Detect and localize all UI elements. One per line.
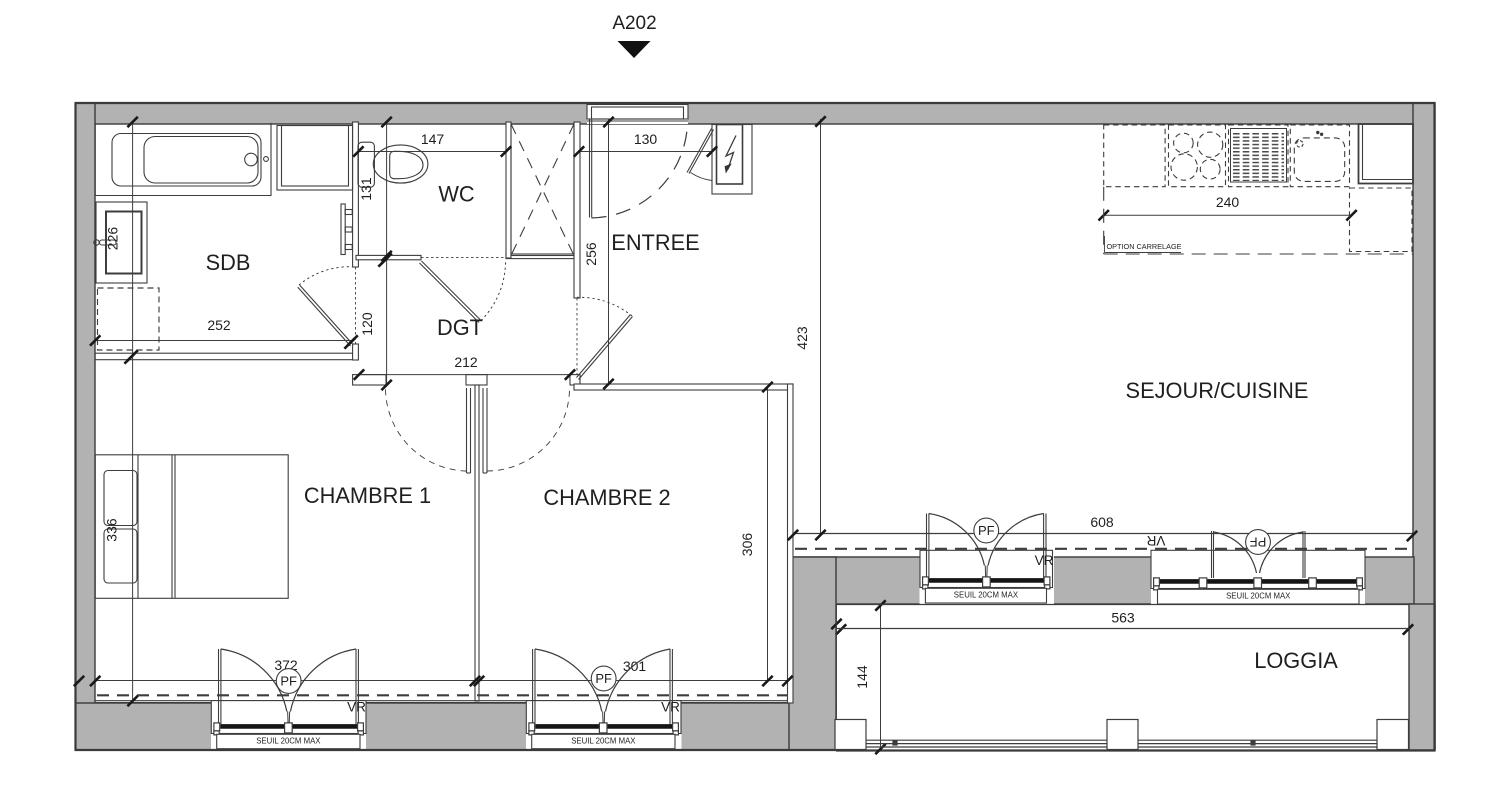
- svg-text:PF: PF: [595, 671, 612, 686]
- svg-text:VR: VR: [347, 700, 366, 715]
- svg-text:608: 608: [1090, 514, 1114, 530]
- svg-text:563: 563: [1111, 610, 1135, 626]
- svg-text:423: 423: [794, 326, 810, 350]
- svg-text:WC: WC: [438, 182, 474, 207]
- svg-text:SEUIL 20CM MAX: SEUIL 20CM MAX: [954, 591, 1019, 600]
- svg-text:144: 144: [854, 665, 870, 689]
- svg-text:131: 131: [358, 177, 374, 201]
- svg-text:256: 256: [583, 242, 599, 266]
- svg-text:PF: PF: [1250, 535, 1267, 550]
- svg-text:CHAMBRE 2: CHAMBRE 2: [543, 485, 670, 510]
- svg-text:SEUIL 20CM MAX: SEUIL 20CM MAX: [1226, 592, 1291, 601]
- svg-text:SEUIL 20CM MAX: SEUIL 20CM MAX: [571, 737, 636, 746]
- svg-text:CHAMBRE 1: CHAMBRE 1: [304, 483, 431, 508]
- svg-text:306: 306: [739, 533, 755, 557]
- svg-text:PF: PF: [978, 523, 995, 538]
- svg-text:336: 336: [104, 518, 120, 542]
- svg-text:DGT: DGT: [437, 315, 483, 340]
- svg-text:A202: A202: [612, 13, 656, 34]
- svg-text:SEUIL 20CM MAX: SEUIL 20CM MAX: [256, 737, 321, 746]
- svg-text:240: 240: [1216, 194, 1240, 210]
- svg-text:SDB: SDB: [206, 250, 251, 275]
- svg-text:VR: VR: [661, 700, 680, 715]
- svg-text:212: 212: [454, 354, 478, 370]
- svg-text:120: 120: [359, 312, 375, 336]
- svg-text:147: 147: [421, 131, 445, 147]
- svg-text:SEJOUR/CUISINE: SEJOUR/CUISINE: [1126, 378, 1309, 403]
- svg-text:ENTREE: ENTREE: [611, 230, 699, 255]
- svg-text:LOGGIA: LOGGIA: [1254, 648, 1338, 673]
- svg-text:130: 130: [634, 131, 658, 147]
- svg-text:VR: VR: [1146, 533, 1165, 548]
- svg-text:PF: PF: [280, 674, 297, 689]
- svg-text:OPTION CARRELAGE: OPTION CARRELAGE: [1107, 242, 1182, 251]
- svg-text:252: 252: [207, 317, 231, 333]
- svg-text:226: 226: [105, 227, 121, 251]
- svg-text:VR: VR: [1035, 553, 1054, 568]
